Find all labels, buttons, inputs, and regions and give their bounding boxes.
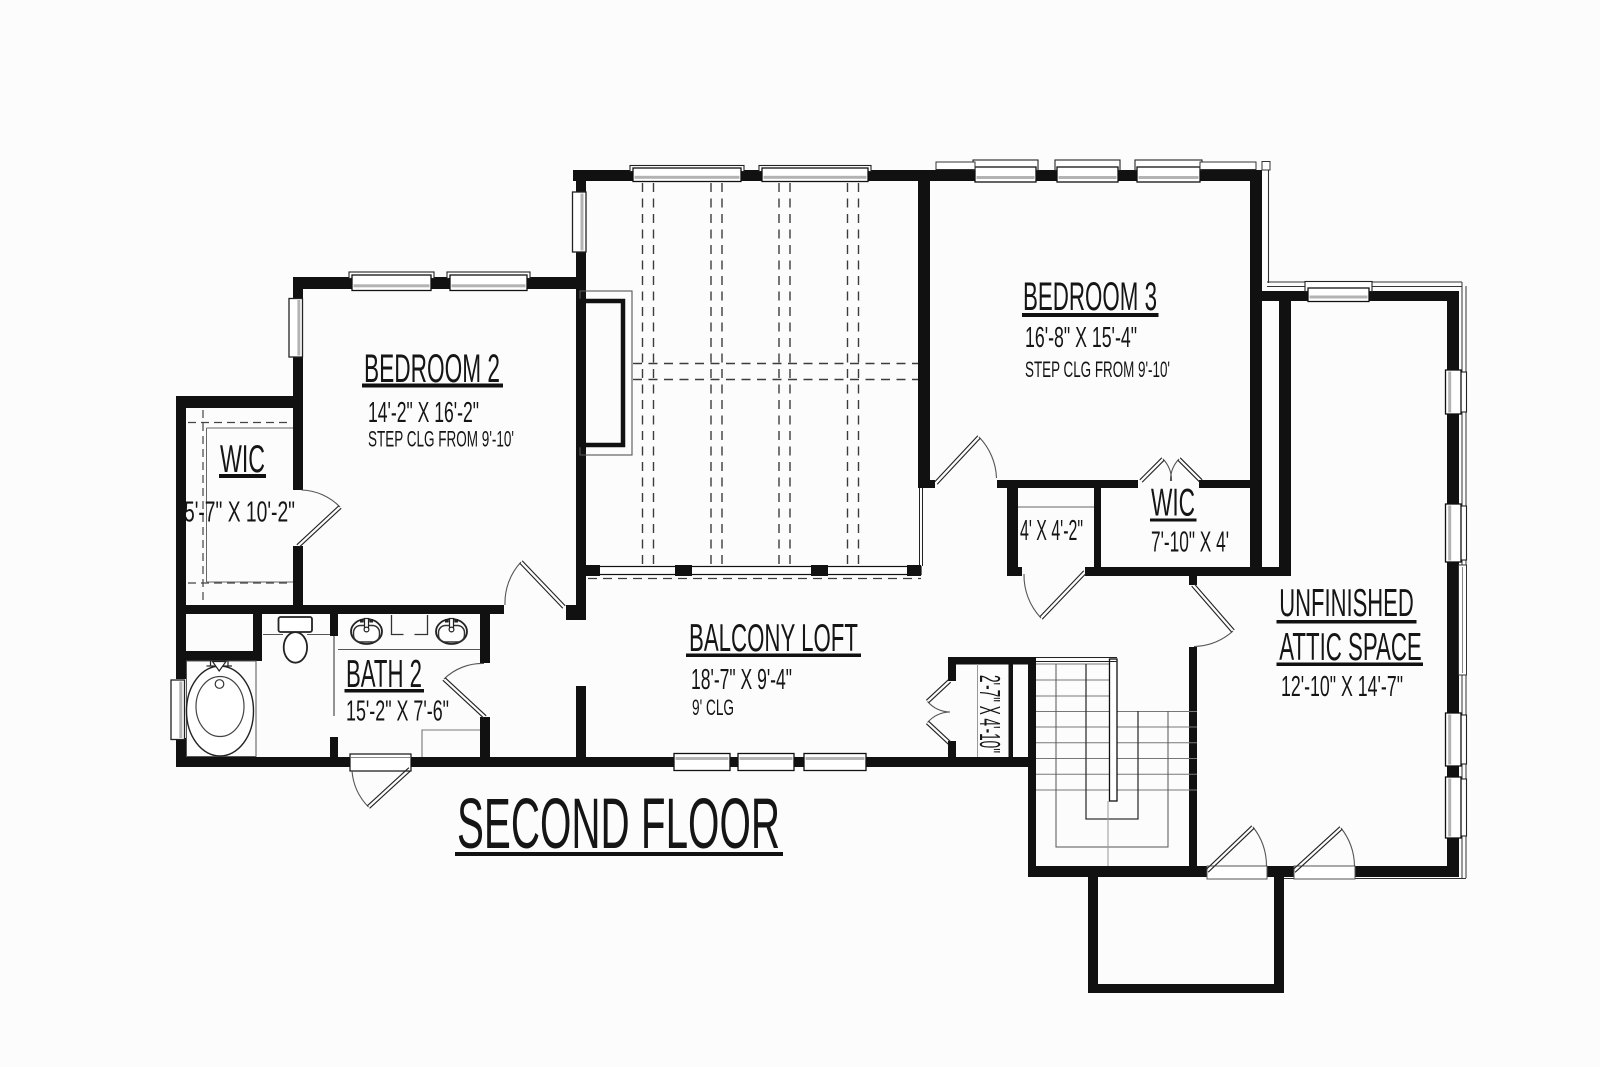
svg-text:18'-7" X 9'-4": 18'-7" X 9'-4"	[691, 664, 792, 696]
svg-text:14'-2" X 16'-2": 14'-2" X 16'-2"	[368, 397, 479, 429]
svg-text:12'-10" X 14'-7": 12'-10" X 14'-7"	[1281, 671, 1403, 703]
svg-text:STEP CLG FROM 9'-10': STEP CLG FROM 9'-10'	[368, 427, 514, 452]
svg-text:STEP CLG FROM 9'-10': STEP CLG FROM 9'-10'	[1025, 357, 1170, 382]
svg-text:15'-2" X 7'-6": 15'-2" X 7'-6"	[346, 696, 449, 728]
svg-text:BEDROOM 3: BEDROOM 3	[1023, 275, 1157, 319]
svg-text:UNFINISHED: UNFINISHED	[1279, 582, 1414, 625]
svg-text:WIC: WIC	[1151, 482, 1195, 525]
svg-text:7'-10" X 4': 7'-10" X 4'	[1151, 527, 1229, 559]
svg-text:5'-7" X 10'-2": 5'-7" X 10'-2"	[184, 497, 295, 529]
svg-text:16'-8" X 15'-4": 16'-8" X 15'-4"	[1025, 322, 1137, 354]
svg-text:9' CLG: 9' CLG	[692, 695, 734, 720]
svg-text:2'-7" X 4'-10": 2'-7" X 4'-10"	[973, 675, 1005, 753]
svg-text:4' X 4'-2": 4' X 4'-2"	[1020, 515, 1083, 547]
